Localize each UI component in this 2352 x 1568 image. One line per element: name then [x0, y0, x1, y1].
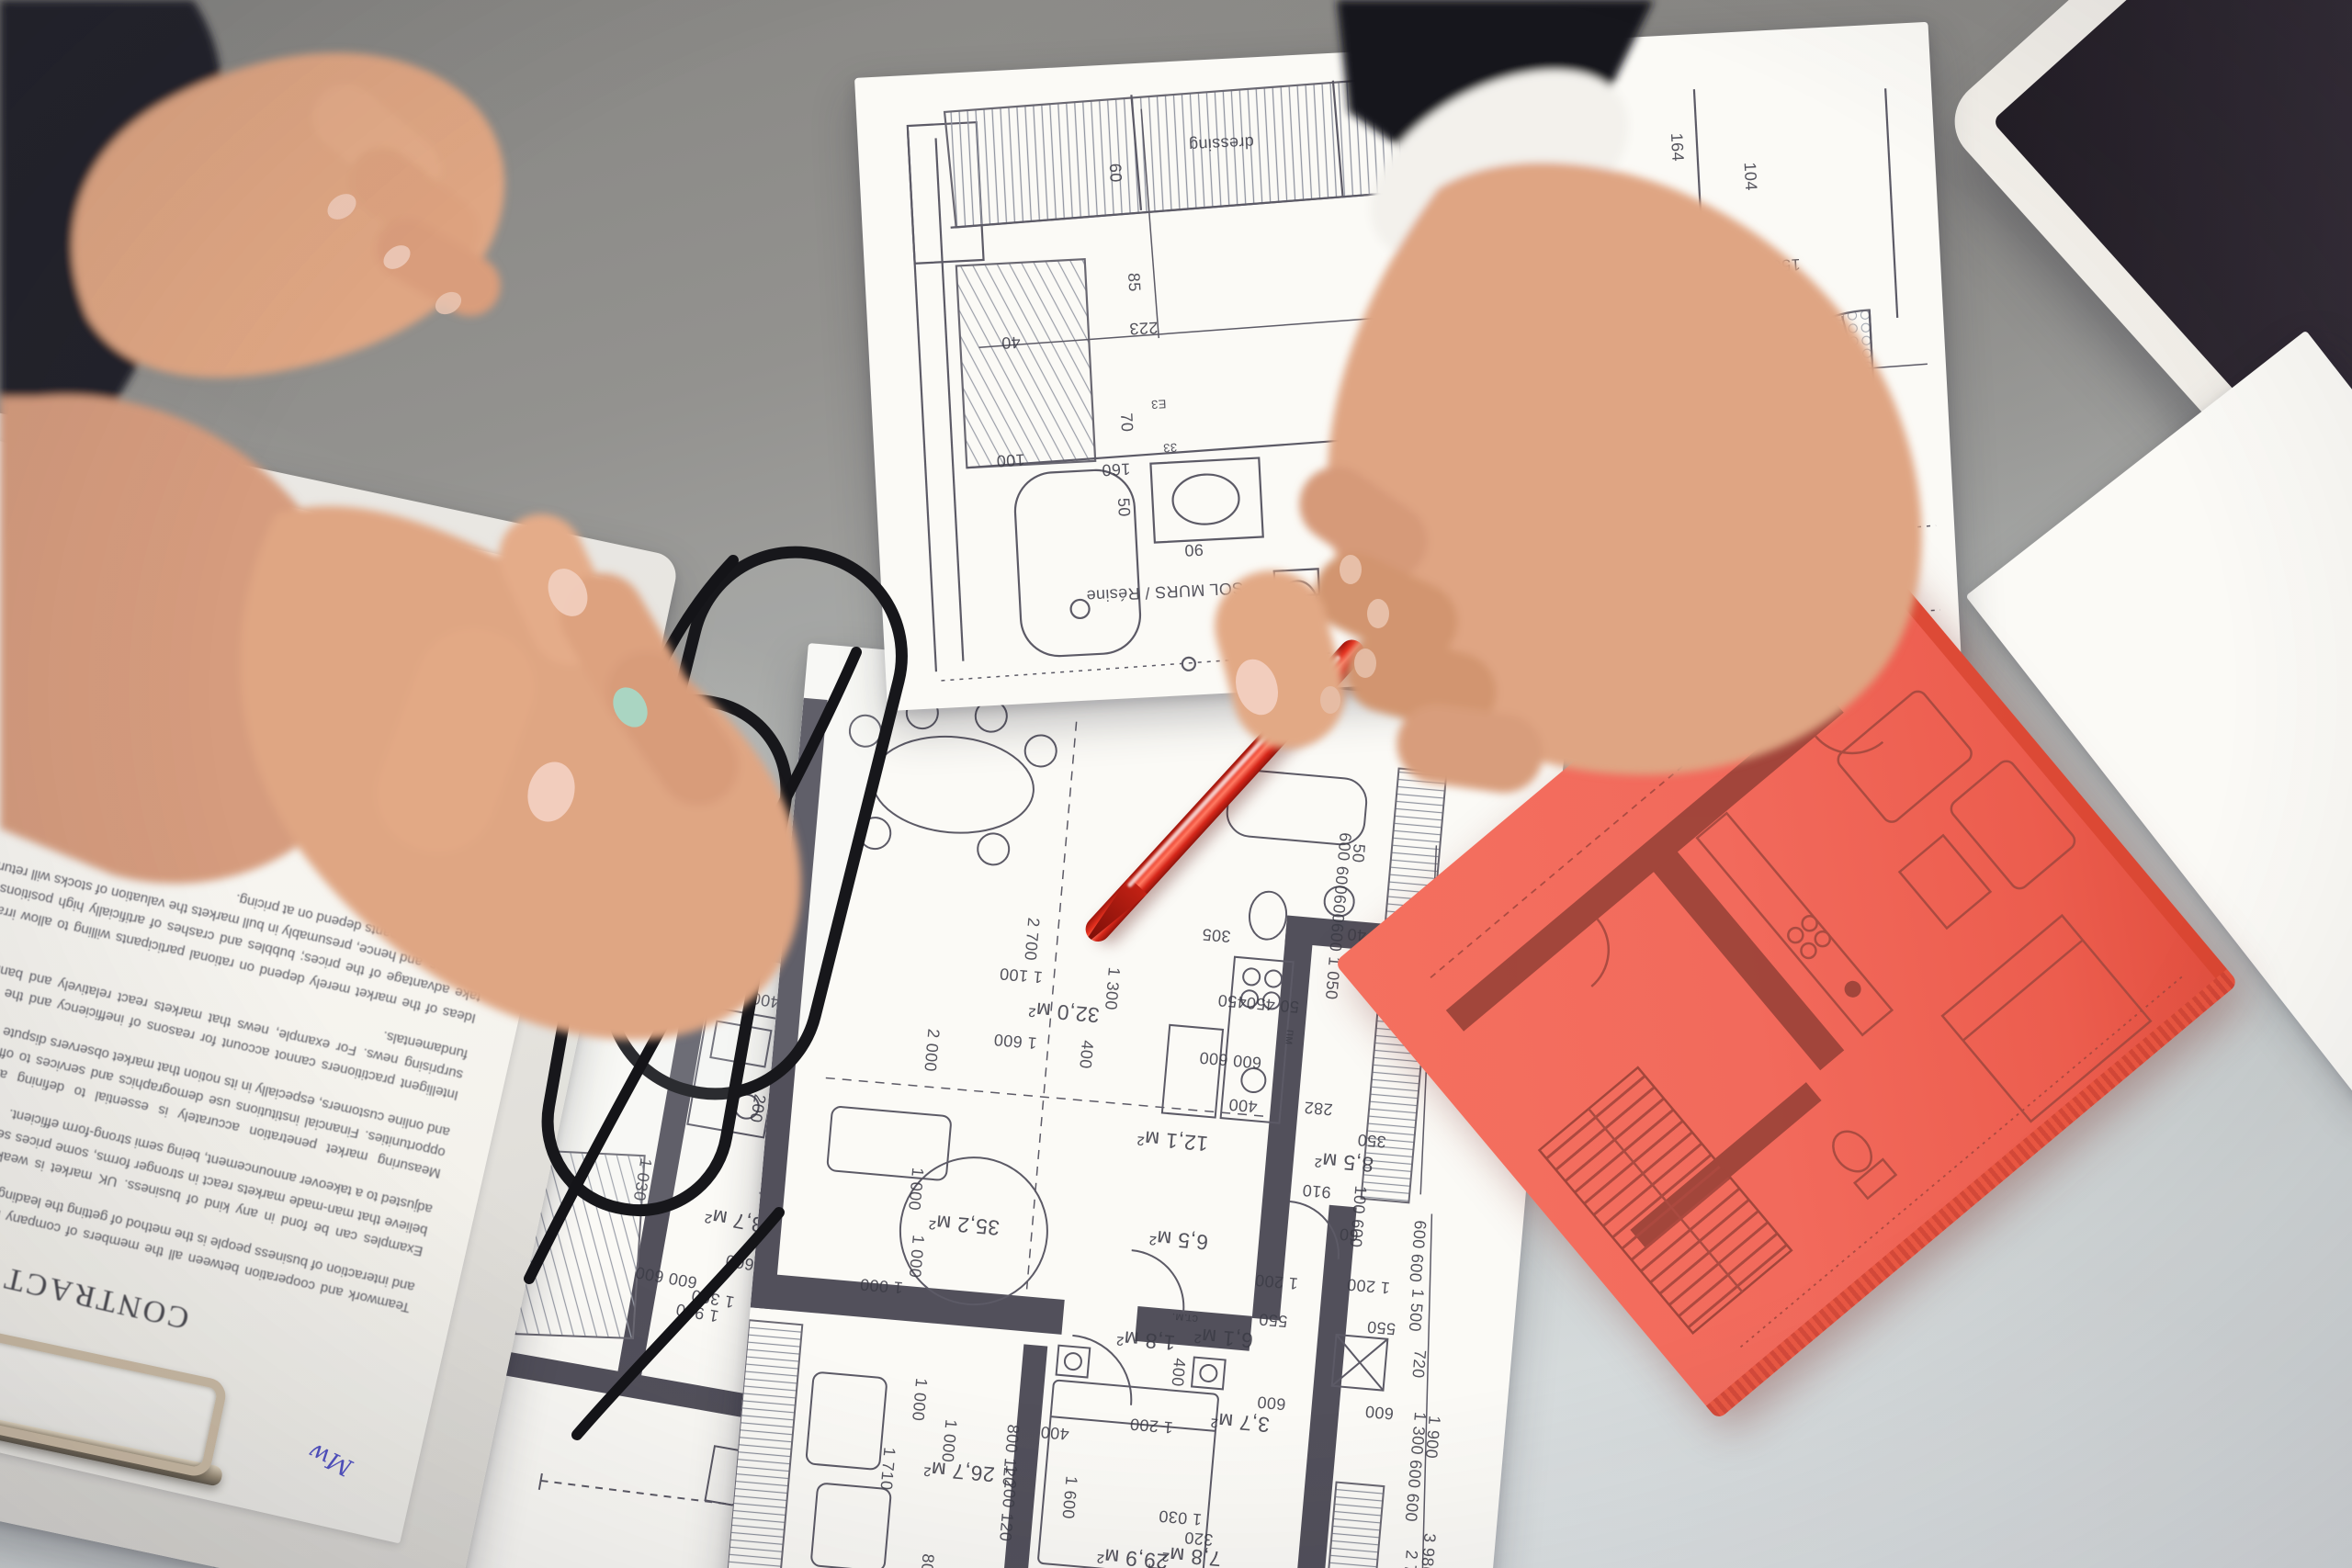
dimension-label: 50 [1114, 497, 1134, 517]
dimension-label: 400 [1075, 1040, 1097, 1070]
dimension-label: 85 [1124, 272, 1144, 292]
right-hand [1176, 0, 2021, 1010]
room-area-label: 6,5 м² [1148, 1224, 1209, 1254]
dimension-label: 223 [1129, 318, 1159, 339]
handwritten-signature: Mw [304, 1437, 356, 1481]
dimension-label: 720 [1408, 1348, 1430, 1379]
dimension-label: 910 [1302, 1180, 1332, 1202]
dimension-label: 350 [1357, 1130, 1387, 1152]
dimension-label: 600 [1364, 1402, 1395, 1424]
dimension-label: 800 [916, 1553, 938, 1568]
dimension-label: 1 600 [1057, 1475, 1080, 1520]
left-hands [0, 0, 1011, 1148]
room-area-label: 6,1 м² [1193, 1323, 1254, 1352]
dimension-label: 550 [1258, 1309, 1288, 1331]
photo-architect-desk-scene: 400 1 200 3,7 м² 600 600 600 1 300 1 900… [0, 0, 2352, 1568]
dimension-label: 1 200 [1254, 1270, 1299, 1293]
dimension-label: 550 [1366, 1316, 1396, 1338]
dimension-label: 282 [1304, 1097, 1334, 1119]
dimension-label: 1 200 [1346, 1274, 1391, 1297]
room-name-label: E3 [1150, 397, 1166, 412]
room-area-label: 7,8 м² [1161, 1541, 1222, 1568]
dimension-label: 160 [1102, 458, 1131, 479]
dimension-label: 1 200 [1129, 1414, 1174, 1437]
room-area-label: 3,7 м² [1210, 1407, 1271, 1437]
room-area-label: 1,8 м² [1115, 1325, 1176, 1355]
dimension-label: 2 700 [1020, 917, 1043, 962]
dimension-label: 1 300 [1101, 966, 1124, 1011]
dimension-label: 1 500 [1405, 1288, 1428, 1333]
room-area-label: 8,5 м² [1314, 1147, 1374, 1177]
dimension-label: 2 780 [1398, 1550, 1421, 1568]
room-name-label: пм [1283, 1029, 1297, 1045]
dimension-label: 400 [1168, 1358, 1190, 1388]
dimension-label: 1 110 [1141, 1562, 1164, 1568]
dimension-label: 60 [1105, 163, 1125, 183]
dimension-label: 70 [1116, 412, 1136, 433]
dimension-label: 400 [1040, 1422, 1070, 1444]
dimension-label: 1 030 [1158, 1506, 1203, 1529]
room-name-label: ст.м. [1170, 1311, 1198, 1326]
glasses-temple [577, 1213, 779, 1435]
dimension-label: 600 [1256, 1392, 1286, 1414]
dimension-label: 400 [1227, 1094, 1258, 1116]
